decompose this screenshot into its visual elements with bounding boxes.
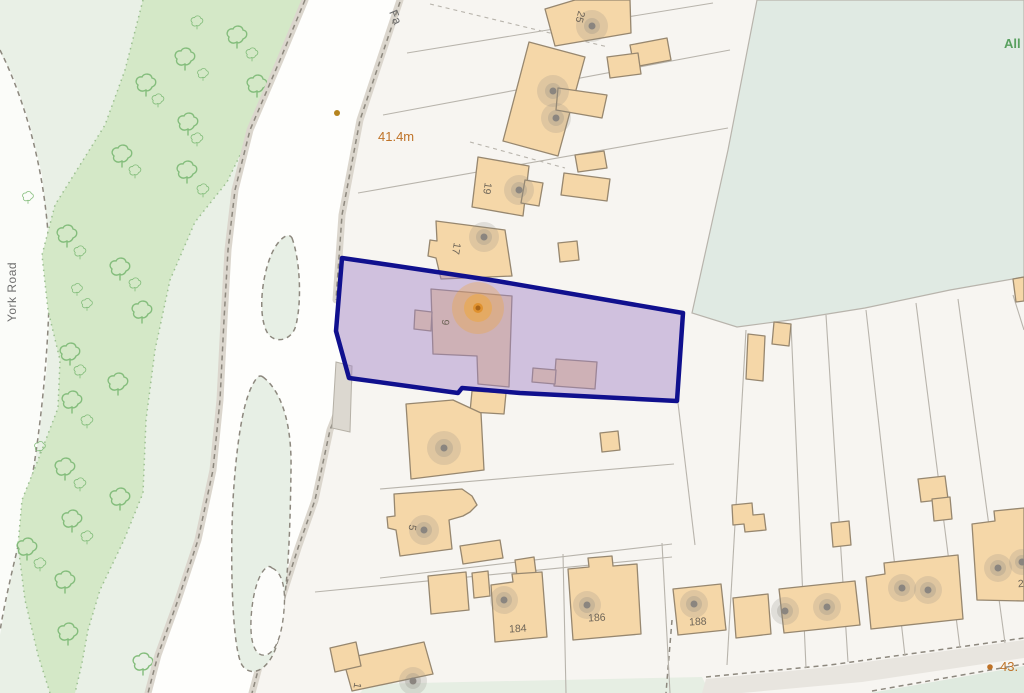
house-number-184: 184	[509, 623, 527, 636]
spot-height-upper: 41.4m	[378, 129, 414, 144]
allotments-label: All	[1004, 36, 1021, 51]
building-shed	[575, 151, 607, 172]
building-shed	[746, 334, 765, 381]
building-shed	[772, 322, 791, 346]
building-1-annex	[330, 642, 361, 672]
building-shed	[607, 53, 641, 78]
building-shed	[600, 431, 620, 452]
house-number-19: 19	[480, 182, 494, 195]
building-shed	[932, 497, 952, 521]
house-number-9: 9	[439, 319, 451, 326]
house-number-2: 2	[1017, 578, 1024, 590]
map-canvas[interactable]: York Road Fa All 41.4m 43. 25 19 17 9 5 …	[0, 0, 1024, 693]
survey-dot	[334, 110, 340, 116]
survey-dot	[987, 664, 993, 670]
house-number-188: 188	[689, 616, 707, 629]
property-marker	[452, 282, 504, 334]
house-number-17: 17	[449, 242, 463, 256]
spot-height-lower: 43.	[1000, 659, 1018, 674]
house-number-186: 186	[588, 612, 606, 625]
york-road-label: York Road	[5, 262, 19, 322]
building-shed	[733, 594, 771, 638]
map-svg: York Road Fa All 41.4m 43. 25 19 17 9 5 …	[0, 0, 1024, 693]
building-shed	[558, 241, 579, 262]
building-shed	[831, 521, 851, 547]
building-shed	[428, 572, 469, 614]
building-shed	[472, 571, 490, 598]
